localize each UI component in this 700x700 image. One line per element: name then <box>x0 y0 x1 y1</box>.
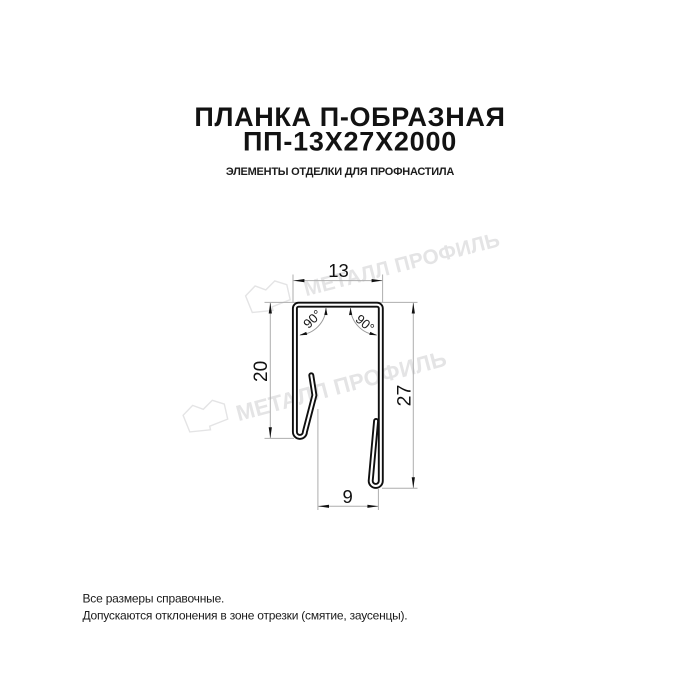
svg-text:20: 20 <box>251 361 272 382</box>
svg-text:ПП-13Х27Х2000: ПП-13Х27Х2000 <box>243 126 457 156</box>
svg-text:13: 13 <box>328 260 349 281</box>
svg-text:Все размеры справочные.: Все размеры справочные. <box>83 592 225 606</box>
svg-text:Допускаются отклонения в зоне: Допускаются отклонения в зоне отрезки (с… <box>83 609 408 623</box>
svg-text:ЭЛЕМЕНТЫ ОТДЕЛКИ ДЛЯ ПРОФНАСТИ: ЭЛЕМЕНТЫ ОТДЕЛКИ ДЛЯ ПРОФНАСТИЛА <box>226 166 454 178</box>
svg-text:27: 27 <box>394 385 416 407</box>
svg-text:9: 9 <box>342 486 352 507</box>
